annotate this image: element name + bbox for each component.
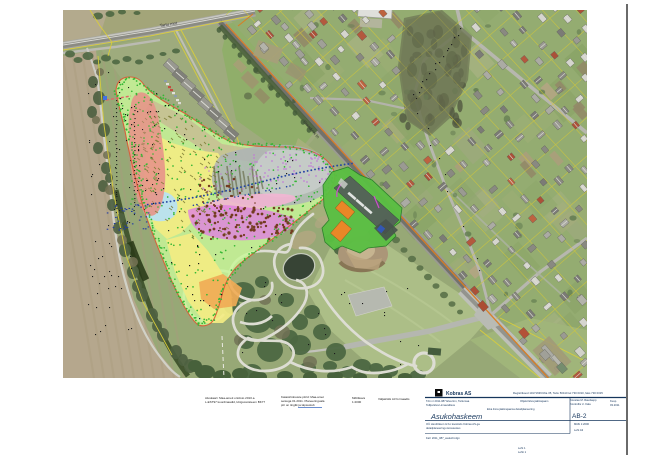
svg-text:1:2000: 1:2000 [352,400,362,404]
svg-text:03.2011: 03.2011 [610,403,620,407]
svg-text:Kuup.: Kuup. [610,399,617,403]
svg-text:L-EST97 koordinaadid, kõrgussü: L-EST97 koordinaadid, kõrgussüsteem BK77 [205,400,265,404]
svg-text:Leht 1: Leht 1 [518,446,526,450]
svg-text:Registrikood 10171636 Riia 35: Registrikood 10171636 Riia 35, Tartu 504… [513,391,603,395]
svg-text:piir on tinglik ja täpsustub: piir on tinglik ja täpsustub [281,403,315,407]
svg-text:Koostas M. Raudsepp: Koostas M. Raudsepp [570,398,597,402]
svg-text:detailplaneeringu koosseisus: detailplaneeringu koosseisus [426,426,461,430]
svg-text:OÜ Hendrikson & Ko koostöös Ko: OÜ Hendrikson & Ko koostöös Kobras AS-ga [426,422,480,426]
svg-text:Leht A3: Leht A3 [574,428,584,432]
svg-text:Mõõt 1:2000: Mõõt 1:2000 [574,422,589,426]
svg-text:Väljatrükk A3 formaadis: Väljatrükk A3 formaadis [378,397,410,401]
svg-text:Objekt Elva jäätmejaam: Objekt Elva jäätmejaam [520,399,549,403]
svg-text:Lehti 1: Lehti 1 [518,450,527,454]
svg-text:Fail: 2011_087_asukoht.dgn: Fail: 2011_087_asukoht.dgn [426,436,460,440]
svg-text:Elva linna jäätmejaama detailp: Elva linna jäätmejaama detailplaneering [487,407,535,411]
svg-text:AB-2: AB-2 [572,413,587,420]
svg-text:Asukohaskeem: Asukohaskeem [430,412,482,421]
svg-text:Kontrollis U. Kala: Kontrollis U. Kala [570,402,591,406]
svg-text:Kobras AS: Kobras AS [446,391,472,397]
svg-text:Tellija Elva Linnavalitsus: Tellija Elva Linnavalitsus [426,403,456,407]
svg-text:Töö nr 2011-087 Elva linn, T: Töö nr 2011-087 Elva linn, Tartumaa [426,399,470,403]
